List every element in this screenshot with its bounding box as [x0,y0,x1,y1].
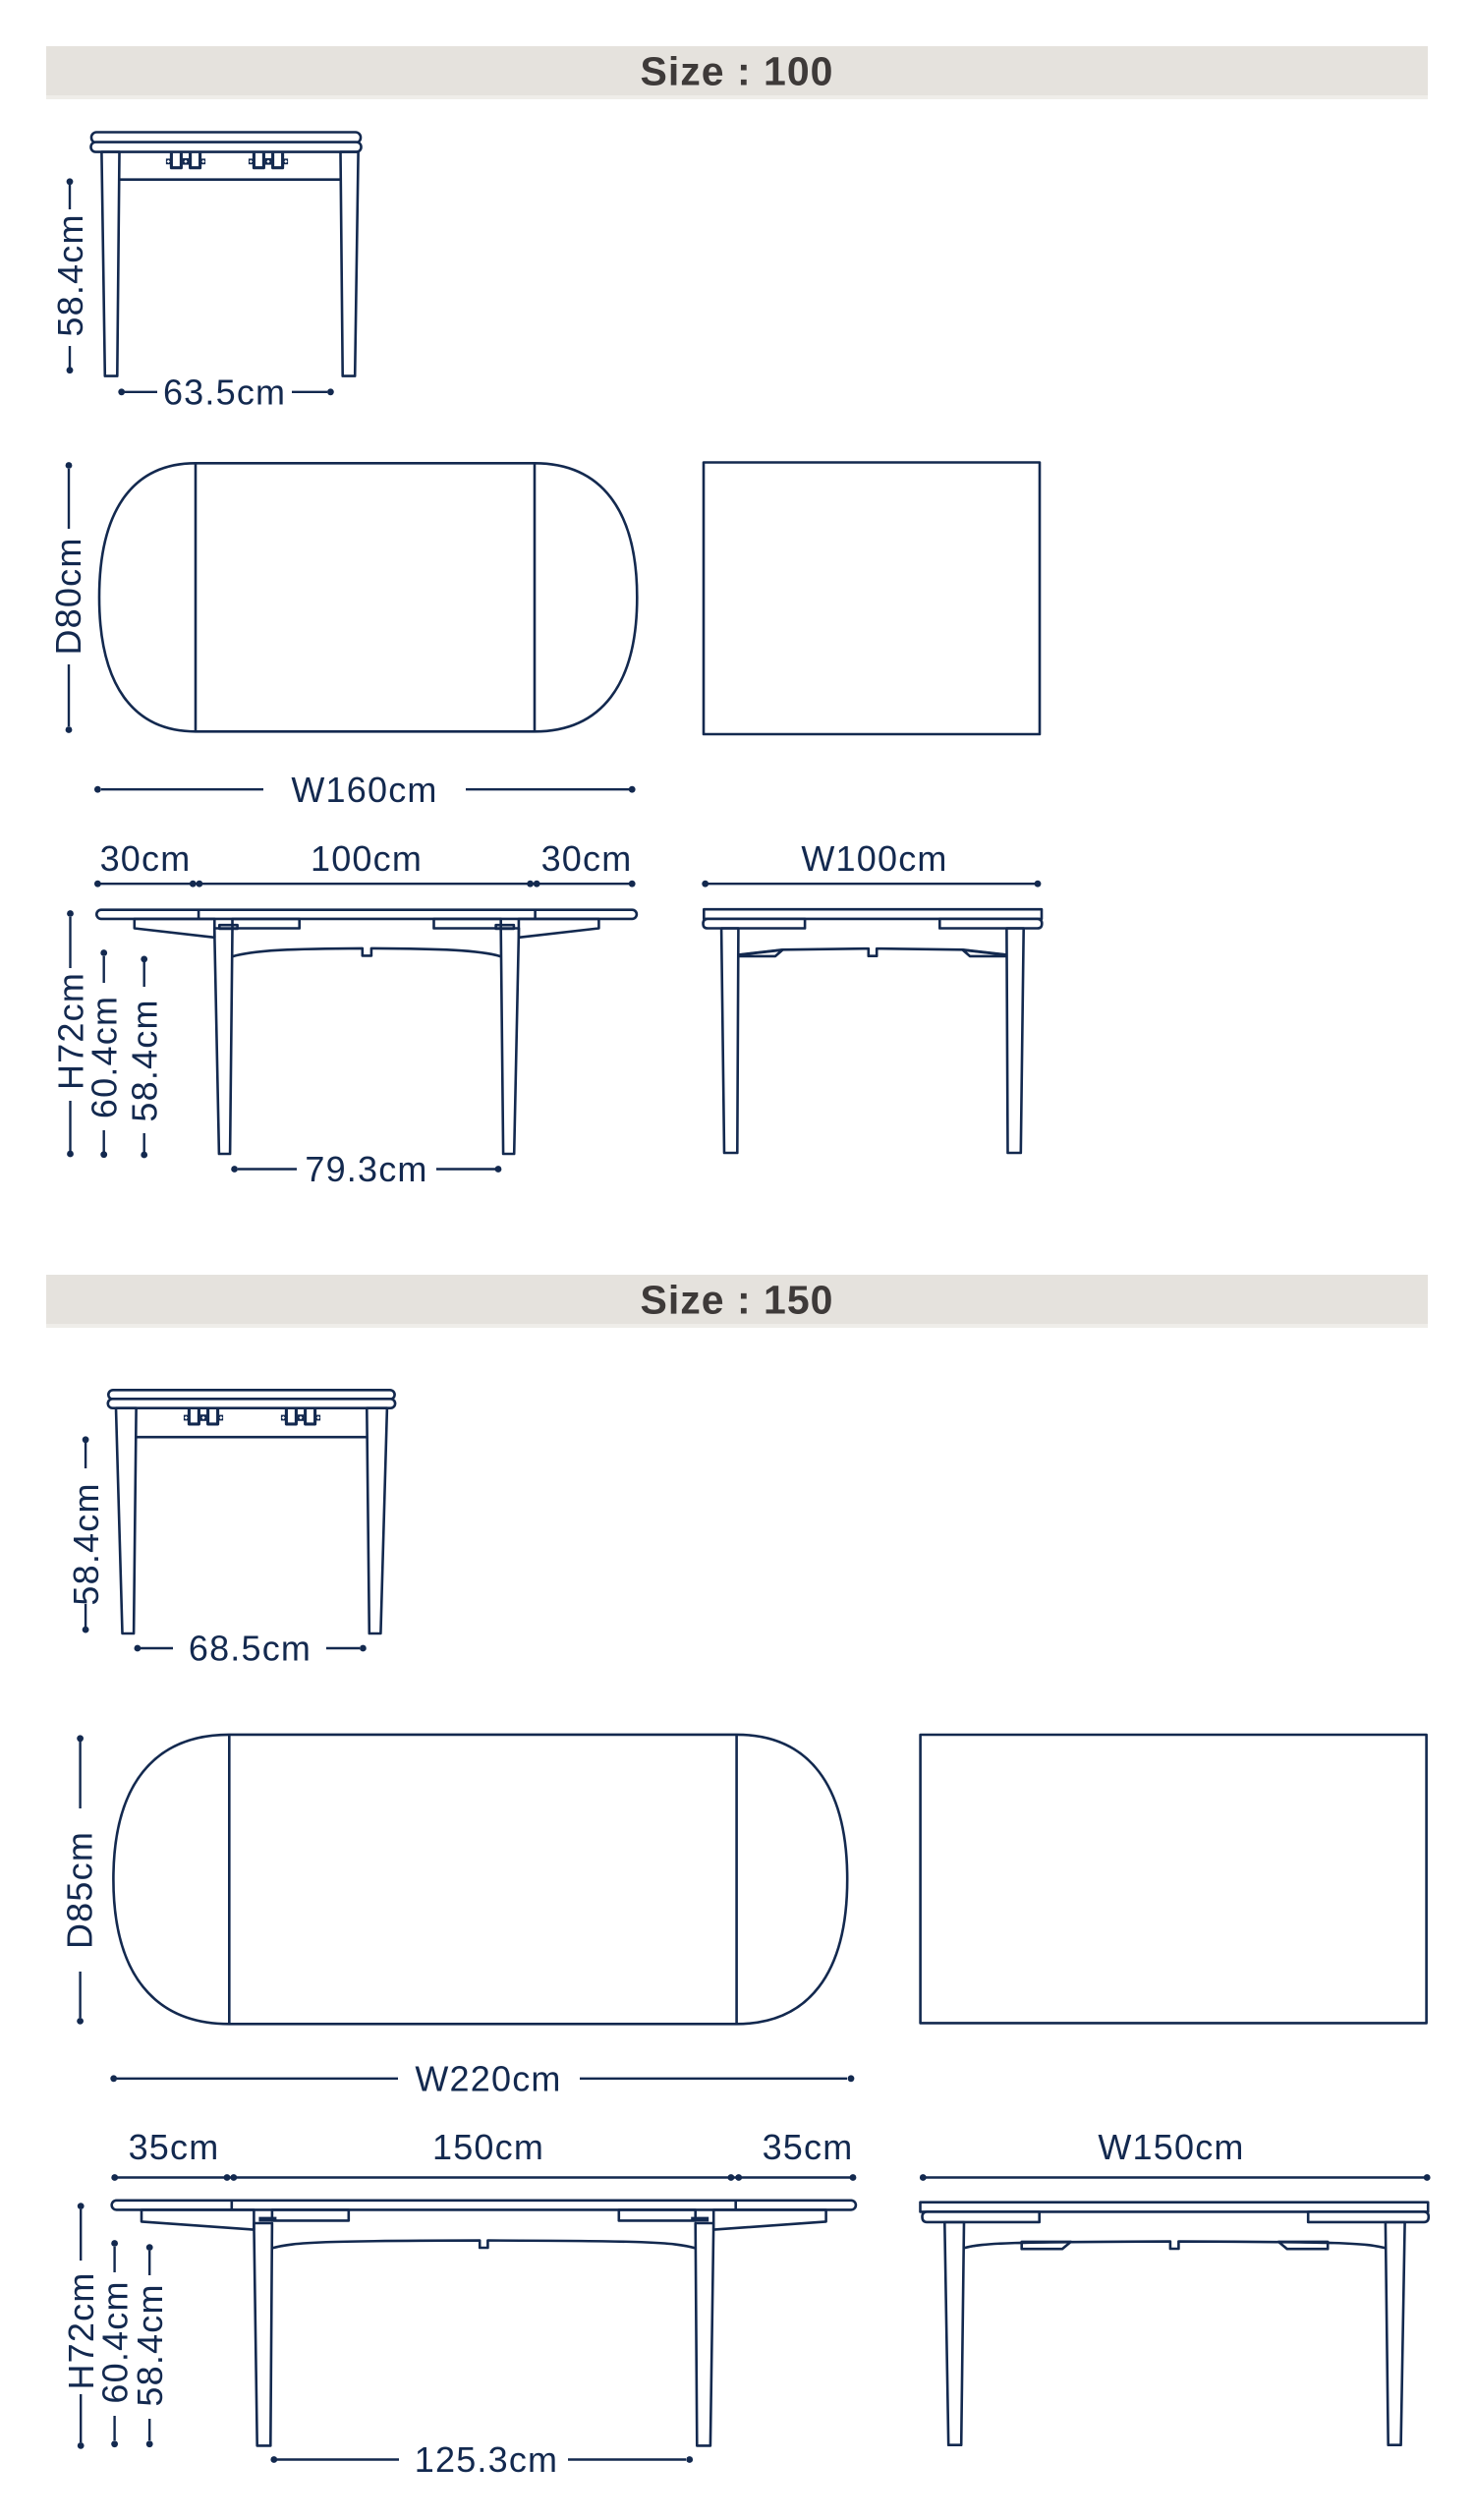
svg-text:35cm: 35cm [763,2127,854,2167]
svg-text:100cm: 100cm [311,838,423,879]
svg-text:79.3cm: 79.3cm [305,1149,427,1189]
svg-text:W220cm: W220cm [415,2059,561,2099]
svg-text:58.4cm: 58.4cm [66,1482,106,1605]
svg-text:63.5cm: 63.5cm [163,372,286,413]
svg-text:W160cm: W160cm [291,770,437,810]
svg-text:68.5cm: 68.5cm [189,1629,312,1669]
svg-text:125.3cm: 125.3cm [415,2439,558,2480]
svg-text:35cm: 35cm [129,2127,220,2167]
svg-text:150cm: 150cm [432,2127,544,2167]
svg-text:W100cm: W100cm [801,838,947,879]
svg-text:W150cm: W150cm [1098,2127,1244,2167]
svg-text:58.4cm: 58.4cm [130,2283,170,2406]
svg-text:60.4cm: 60.4cm [85,996,125,1118]
svg-text:D80cm: D80cm [48,537,88,655]
svg-text:30cm: 30cm [100,838,192,879]
svg-text:D85cm: D85cm [60,1831,100,1949]
svg-text:30cm: 30cm [541,838,633,879]
svg-text:Size : 100: Size : 100 [641,49,834,94]
svg-text:Size : 150: Size : 150 [641,1278,834,1323]
svg-text:58.4cm: 58.4cm [50,213,90,336]
svg-text:58.4cm: 58.4cm [125,999,165,1121]
